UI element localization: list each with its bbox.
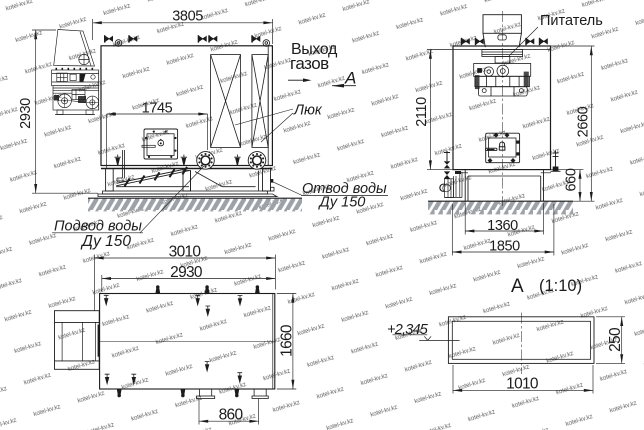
svg-text:газов: газов: [290, 54, 329, 73]
svg-text:2930: 2930: [170, 264, 203, 281]
svg-text:3010: 3010: [169, 244, 202, 261]
svg-text:Ду 150: Ду 150: [80, 233, 131, 250]
svg-text:1010: 1010: [506, 375, 539, 392]
svg-text:(1:10): (1:10): [539, 277, 582, 295]
svg-text:2660: 2660: [576, 106, 592, 137]
svg-text:660: 660: [564, 168, 580, 191]
svg-text:Ду 150: Ду 150: [318, 195, 366, 211]
svg-text:+2,345: +2,345: [387, 322, 429, 338]
svg-text:1850: 1850: [489, 239, 520, 255]
svg-text:3805: 3805: [172, 9, 203, 25]
svg-text:860: 860: [219, 407, 244, 424]
svg-text:1360: 1360: [487, 218, 518, 234]
svg-text:2110: 2110: [414, 97, 430, 127]
svg-text:1660: 1660: [279, 324, 296, 357]
svg-text:1745: 1745: [142, 101, 173, 117]
svg-text:Люк: Люк: [293, 103, 323, 119]
svg-text:250: 250: [607, 327, 624, 352]
svg-text:A: A: [511, 276, 524, 297]
svg-text:2930: 2930: [18, 98, 34, 129]
svg-text:Питатель: Питатель: [540, 13, 603, 29]
svg-text:A: A: [344, 69, 356, 88]
